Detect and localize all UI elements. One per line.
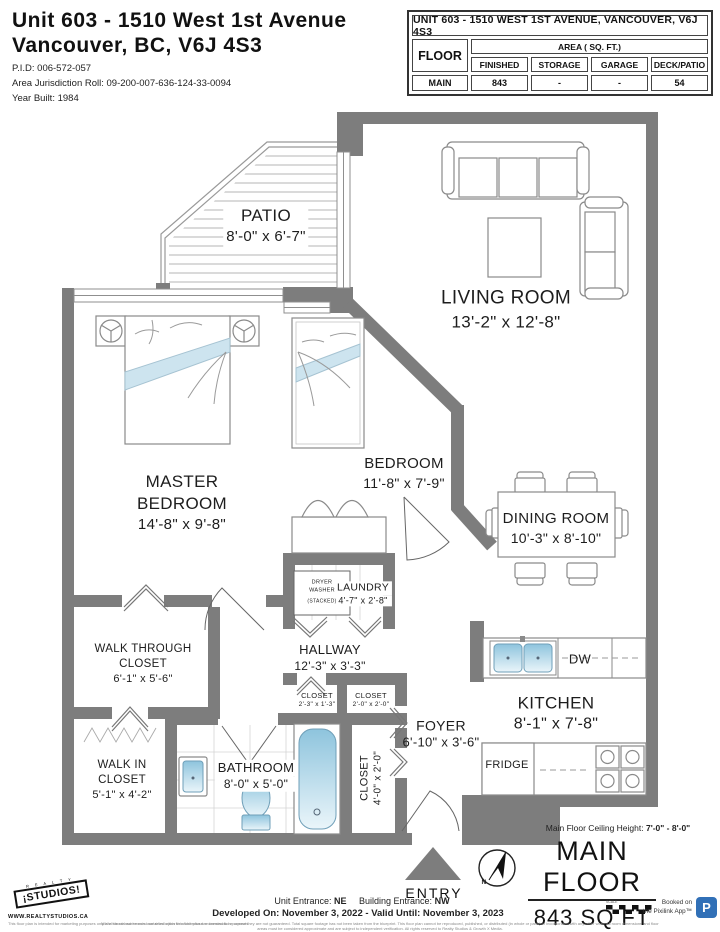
compass-north-label: N [482, 879, 487, 887]
floorplan-page: Unit 603 - 1510 West 1st Avenue Vancouve… [0, 0, 720, 932]
building-entrance-label: Building Entrance: [359, 896, 432, 906]
room-name: BEDROOM [363, 454, 444, 474]
room-name: CLOSET [95, 657, 192, 672]
appliance-text: WASHER [307, 587, 336, 595]
room-dims: 6'-10" x 3'-6" [403, 735, 480, 752]
single-bed-icon [292, 318, 364, 448]
scale-label: SCALE [606, 900, 617, 905]
bathtub-icon [294, 724, 340, 834]
coffee-table-icon [488, 218, 541, 277]
hanger-rod-icon [84, 728, 156, 742]
room-label-hallway: HALLWAY 12'-3" x 3'-3" [294, 642, 365, 674]
building-entrance-value: NW [435, 896, 450, 906]
room-label-foyer: FOYER 6'-10" x 3'-6" [403, 716, 480, 751]
unit-entrance-value: NE [334, 896, 347, 906]
room-label-closet-mid: CLOSET 2'-0" x 2'-0" [353, 691, 390, 709]
booked-line1: Booked on [636, 899, 692, 908]
pixilink-letter: P [702, 900, 711, 915]
room-dims: 6'-1" x 5'-6" [95, 672, 192, 686]
compass-n-text: N [482, 879, 487, 887]
sofa-icon [442, 142, 589, 199]
room-dims: 8'-0" x 5'-0" [215, 777, 298, 793]
room-dims: 8'-0" x 6'-7" [223, 227, 308, 247]
room-label-bedroom: BEDROOM 11'-8" x 7'-9" [363, 454, 444, 492]
pixilink-booked-text: Booked on the Pixilink App™ [636, 899, 692, 916]
room-name: CLOSET [299, 691, 336, 701]
validity-line: Developed On: November 3, 2022 - Valid U… [212, 908, 503, 919]
main-floor-block: MAIN FLOOR 843 SQ FT [528, 836, 656, 931]
website-link[interactable]: WWW.REALTYSTUDIOS.CA [8, 914, 88, 920]
room-label-master-bedroom: MASTER BEDROOM 14'-8" x 9'-8" [137, 471, 227, 535]
appliance-text: DRYER [307, 579, 336, 587]
room-name: CLOSET [353, 691, 390, 701]
room-label-living-room: LIVING ROOM 13'-2" x 12'-8" [441, 287, 571, 334]
appliance-text: DW [569, 652, 591, 669]
label-washer-dryer: DRYER WASHER (STACKED) [307, 579, 336, 606]
ceiling-label: Main Floor Ceiling Height: [546, 823, 644, 833]
room-name: CLOSET [92, 773, 151, 788]
room-dims: 2'-3" x 1'-3" [299, 701, 336, 709]
ceiling-height-line: Main Floor Ceiling Height: 7'-0" - 8'-0" [520, 823, 716, 833]
room-dims: 12'-3" x 3'-3" [294, 659, 365, 675]
room-dims: 11'-8" x 7'-9" [363, 474, 444, 492]
room-name: BATHROOM [215, 760, 298, 777]
main-floor-title: MAIN FLOOR [528, 836, 656, 901]
double-sink-icon [490, 636, 556, 675]
room-name: PATIO [223, 205, 308, 227]
entry-arrow-icon [405, 847, 461, 880]
dresser-icon [292, 501, 386, 554]
room-dims: 4'-0" x 2'-0" [372, 751, 385, 805]
master-bed-icon [96, 316, 259, 444]
room-label-walk-through-closet: WALK THROUGH CLOSET 6'-1" x 5'-6" [95, 642, 192, 686]
room-name: FOYER [403, 716, 480, 734]
room-dims: 13'-2" x 12'-8" [441, 311, 571, 333]
label-fridge: FRIDGE [485, 758, 528, 772]
booked-line2: the Pixilink App™ [636, 908, 692, 917]
room-name: CLOSET [357, 751, 371, 805]
room-name: HALLWAY [294, 642, 365, 659]
room-name: KITCHEN [514, 693, 599, 715]
room-label-dining-room: DINING ROOM 10'-3" x 8'-10" [503, 509, 610, 547]
unit-entrance-label: Unit Entrance: [274, 896, 331, 906]
room-label-closet-small: CLOSET 2'-3" x 1'-3" [299, 691, 336, 709]
room-name: WALK IN [92, 758, 151, 773]
pixilink-logo-icon: P [696, 897, 717, 918]
room-name: LAUNDRY [334, 581, 392, 595]
room-dims: 5'-1" x 4'-2" [92, 788, 151, 802]
entry-door-icon [402, 791, 459, 831]
room-dims: 4'-7" x 2'-8" [334, 595, 392, 607]
room-name: DINING ROOM [503, 509, 610, 529]
entrance-info-line: Unit Entrance: NE Building Entrance: NW [274, 896, 449, 906]
bedroom-door-icon [404, 497, 449, 560]
ceiling-value: 7'-0" - 8'-0" [646, 823, 690, 833]
room-dims: 2'-0" x 2'-0" [353, 701, 390, 709]
loveseat-icon [580, 197, 628, 299]
room-dims: 10'-3" x 8'-10" [503, 529, 610, 547]
vanity-sink-icon [179, 757, 207, 796]
appliance-text: (STACKED) [307, 598, 336, 606]
room-name: MASTER [137, 471, 227, 493]
room-name: BEDROOM [137, 493, 227, 515]
room-label-closet-tall: CLOSET 4'-0" x 2'-0" [357, 751, 384, 805]
logo-tagline: This floor plan is intended for marketin… [8, 921, 348, 926]
room-name: WALK THROUGH [95, 642, 192, 657]
room-label-laundry: LAUNDRY 4'-7" x 2'-8" [334, 581, 392, 606]
room-dims: 14'-8" x 9'-8" [137, 515, 227, 535]
room-name: LIVING ROOM [441, 287, 571, 312]
appliance-text: FRIDGE [485, 758, 528, 772]
room-label-patio: PATIO 8'-0" x 6'-7" [223, 205, 308, 247]
label-dishwasher: DW [569, 652, 591, 669]
room-label-kitchen: KITCHEN 8'-1" x 7'-8" [514, 693, 599, 736]
room-label-bathroom: BATHROOM 8'-0" x 5'-0" [215, 760, 298, 792]
room-label-walk-in-closet: WALK IN CLOSET 5'-1" x 4'-2" [92, 758, 151, 802]
bathroom-door-icon [222, 726, 276, 764]
room-dims: 8'-1" x 7'-8" [514, 715, 599, 736]
